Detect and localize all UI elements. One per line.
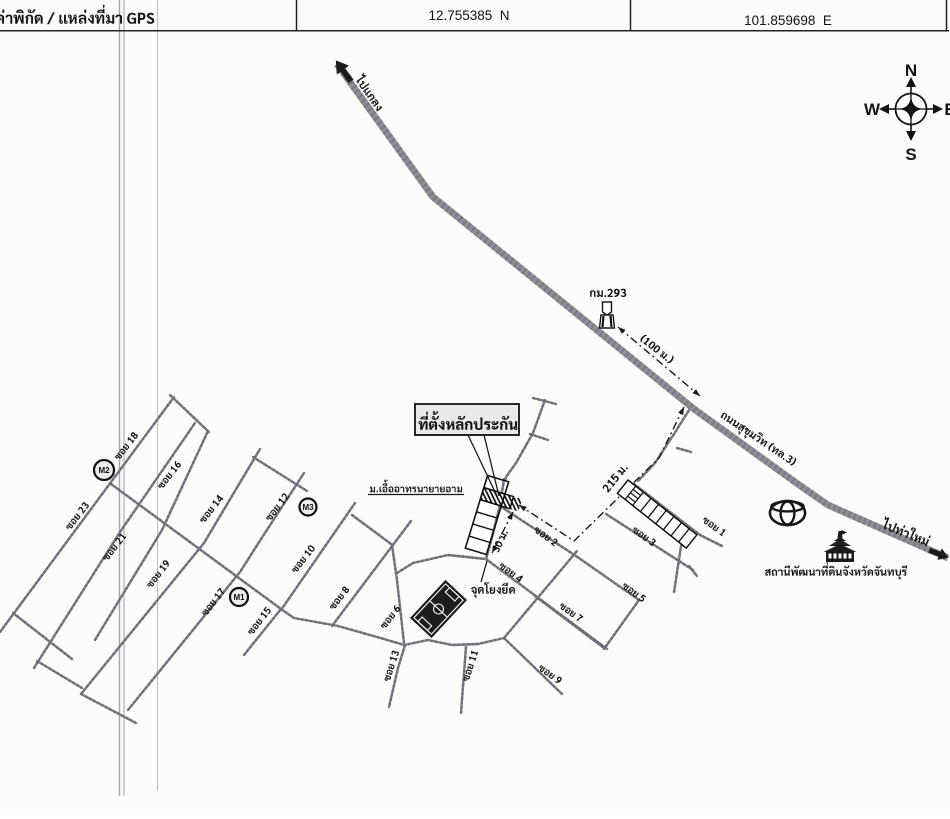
svg-text:S: S bbox=[905, 145, 916, 164]
svg-text:E: E bbox=[944, 100, 950, 119]
svg-text:101.859698 E: 101.859698 E bbox=[744, 13, 832, 28]
svg-text:M3: M3 bbox=[302, 503, 314, 512]
svg-text:W: W bbox=[864, 100, 881, 119]
svg-text:N: N bbox=[905, 61, 917, 80]
svg-text:M2: M2 bbox=[98, 466, 110, 475]
svg-text:M1: M1 bbox=[233, 593, 245, 602]
svg-text:12.755385 N: 12.755385 N bbox=[428, 8, 509, 23]
